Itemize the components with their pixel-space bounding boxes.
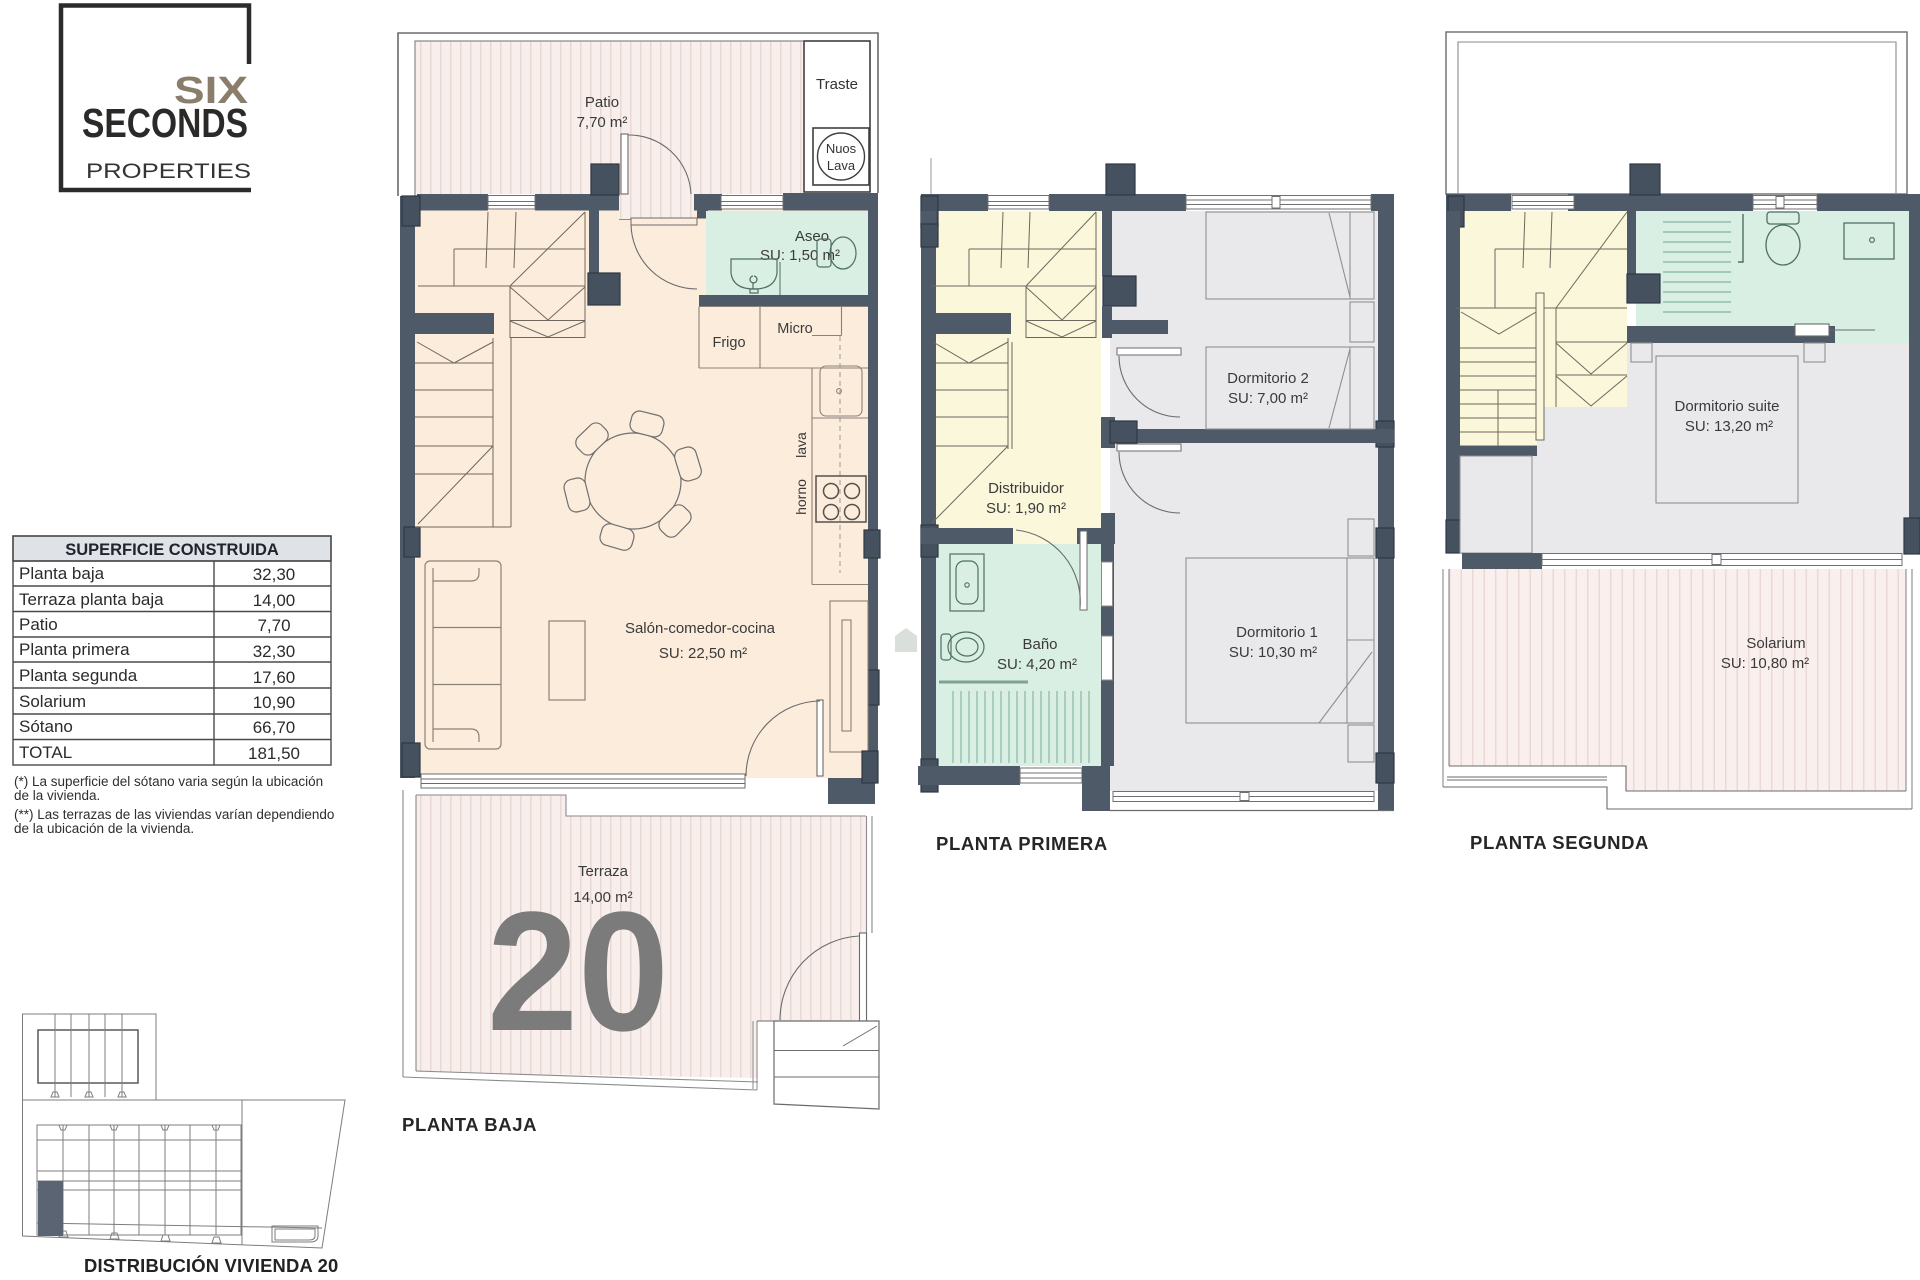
svg-text:Patio: Patio — [19, 615, 58, 634]
svg-text:Distribuidor: Distribuidor — [988, 480, 1064, 497]
svg-text:17,60: 17,60 — [253, 668, 296, 687]
svg-text:Nuos: Nuos — [826, 141, 857, 156]
svg-text:Terraza planta baja: Terraza planta baja — [19, 590, 164, 609]
svg-text:14,00: 14,00 — [253, 591, 296, 610]
svg-text:Patio: Patio — [585, 94, 619, 111]
svg-text:PROPERTIES: PROPERTIES — [86, 160, 251, 183]
svg-text:SU: 1,90 m²: SU: 1,90 m² — [986, 500, 1066, 517]
svg-text:Dormitorio suite: Dormitorio suite — [1674, 398, 1779, 415]
svg-text:66,70: 66,70 — [253, 718, 296, 737]
svg-text:Dormitorio 1: Dormitorio 1 — [1236, 624, 1318, 641]
svg-text:Solarium: Solarium — [19, 692, 86, 711]
svg-text:SU: 10,80 m²: SU: 10,80 m² — [1721, 655, 1809, 672]
svg-text:20: 20 — [487, 877, 669, 1067]
svg-text:de la ubicación de la vivienda: de la ubicación de la vivienda. — [14, 821, 194, 836]
svg-text:SU: 7,00 m²: SU: 7,00 m² — [1228, 390, 1308, 407]
svg-text:SECONDS: SECONDS — [82, 100, 248, 146]
svg-text:32,30: 32,30 — [253, 642, 296, 661]
svg-text:PLANTA SEGUNDA: PLANTA SEGUNDA — [1470, 832, 1649, 853]
svg-text:SU: 13,20 m²: SU: 13,20 m² — [1685, 418, 1773, 435]
svg-text:Planta segunda: Planta segunda — [19, 666, 138, 685]
svg-text:SU: 10,30 m²: SU: 10,30 m² — [1229, 644, 1317, 661]
svg-text:7,70 m²: 7,70 m² — [577, 114, 628, 131]
svg-text:SU: 1,50 m²: SU: 1,50 m² — [760, 247, 840, 264]
svg-text:PLANTA BAJA: PLANTA BAJA — [402, 1114, 537, 1135]
svg-text:lava: lava — [793, 432, 809, 458]
svg-text:Dormitorio 2: Dormitorio 2 — [1227, 370, 1309, 387]
svg-text:PLANTA PRIMERA: PLANTA PRIMERA — [936, 833, 1108, 854]
svg-text:DISTRIBUCIÓN VIVIENDA 20: DISTRIBUCIÓN VIVIENDA 20 — [84, 1255, 338, 1276]
svg-text:Frigo: Frigo — [712, 335, 745, 351]
svg-text:7,70: 7,70 — [257, 616, 290, 635]
svg-text:horno: horno — [793, 479, 809, 515]
svg-text:Sótano: Sótano — [19, 717, 73, 736]
svg-text:Baño: Baño — [1022, 636, 1057, 653]
svg-text:SUPERFICIE CONSTRUIDA: SUPERFICIE CONSTRUIDA — [65, 541, 279, 559]
svg-text:Traste: Traste — [816, 76, 858, 93]
svg-text:(*) La superficie del sótano v: (*) La superficie del sótano varia según… — [14, 774, 323, 789]
svg-text:de la vivienda.: de la vivienda. — [14, 788, 100, 803]
svg-text:32,30: 32,30 — [253, 565, 296, 584]
svg-text:181,50: 181,50 — [248, 744, 300, 763]
svg-text:TOTAL: TOTAL — [19, 743, 72, 762]
svg-text:Planta primera: Planta primera — [19, 640, 130, 659]
svg-text:Aseo: Aseo — [795, 228, 829, 245]
svg-text:10,90: 10,90 — [253, 693, 296, 712]
svg-text:SU: 4,20 m²: SU: 4,20 m² — [997, 656, 1077, 673]
svg-text:Salón-comedor-cocina: Salón-comedor-cocina — [625, 620, 776, 637]
svg-text:Micro: Micro — [777, 321, 812, 337]
svg-text:Solarium: Solarium — [1746, 635, 1805, 652]
svg-text:Lava: Lava — [827, 158, 856, 173]
svg-text:(**) Las terrazas de las vivie: (**) Las terrazas de las viviendas varía… — [14, 807, 334, 822]
svg-text:SU: 22,50 m²: SU: 22,50 m² — [659, 645, 747, 662]
svg-text:Planta baja: Planta baja — [19, 564, 105, 583]
